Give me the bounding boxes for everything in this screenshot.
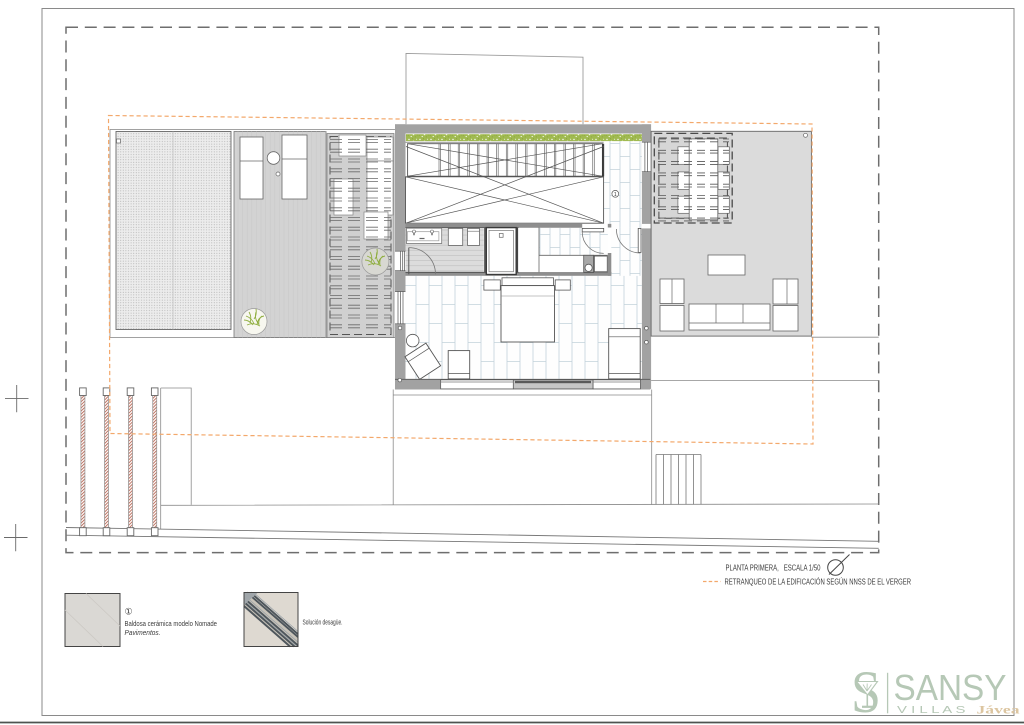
svg-text:PLANTA PRIMERA, ESCALA 1/50: PLANTA PRIMERA, ESCALA 1/50 bbox=[726, 564, 821, 573]
svg-text:Pavimentos.: Pavimentos. bbox=[125, 628, 161, 637]
svg-text:1: 1 bbox=[614, 192, 617, 198]
svg-text:V I L L A S: V I L L A S bbox=[897, 704, 966, 716]
svg-text:Solución desagüe.: Solución desagüe. bbox=[303, 618, 343, 627]
svg-text:Jávea: Jávea bbox=[977, 703, 1020, 717]
svg-text:RETRANQUEO DE LA EDIFICACIÓN S: RETRANQUEO DE LA EDIFICACIÓN SEGÚN NNSS … bbox=[725, 578, 912, 587]
svg-text:Baldosa cerámica modelo Nomade: Baldosa cerámica modelo Nomade bbox=[125, 619, 218, 628]
svg-text:①: ① bbox=[125, 607, 133, 617]
